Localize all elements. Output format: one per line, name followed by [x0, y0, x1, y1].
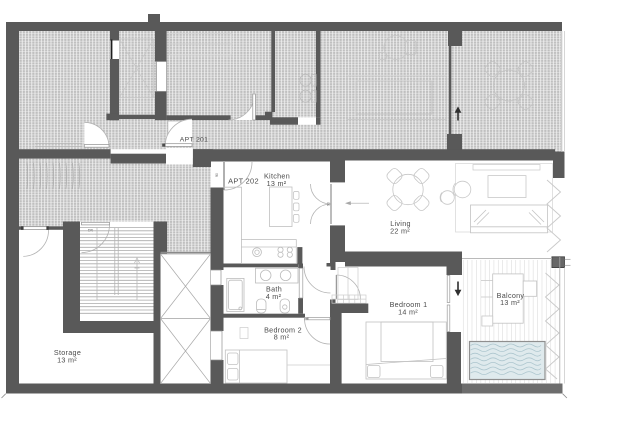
svg-text:22 m²: 22 m²: [390, 226, 410, 235]
svg-text:90: 90: [215, 173, 219, 177]
svg-text:90: 90: [327, 202, 331, 206]
svg-text:APT 201: APT 201: [180, 137, 208, 144]
svg-text:APT 202: APT 202: [228, 177, 259, 186]
svg-text:13 m²: 13 m²: [267, 179, 287, 188]
svg-text:4 m²: 4 m²: [266, 292, 282, 301]
svg-text:13 m²: 13 m²: [57, 355, 77, 364]
svg-text:13 m²: 13 m²: [500, 298, 520, 307]
svg-text:14 m²: 14 m²: [398, 307, 418, 316]
svg-text:8 m²: 8 m²: [274, 333, 290, 342]
